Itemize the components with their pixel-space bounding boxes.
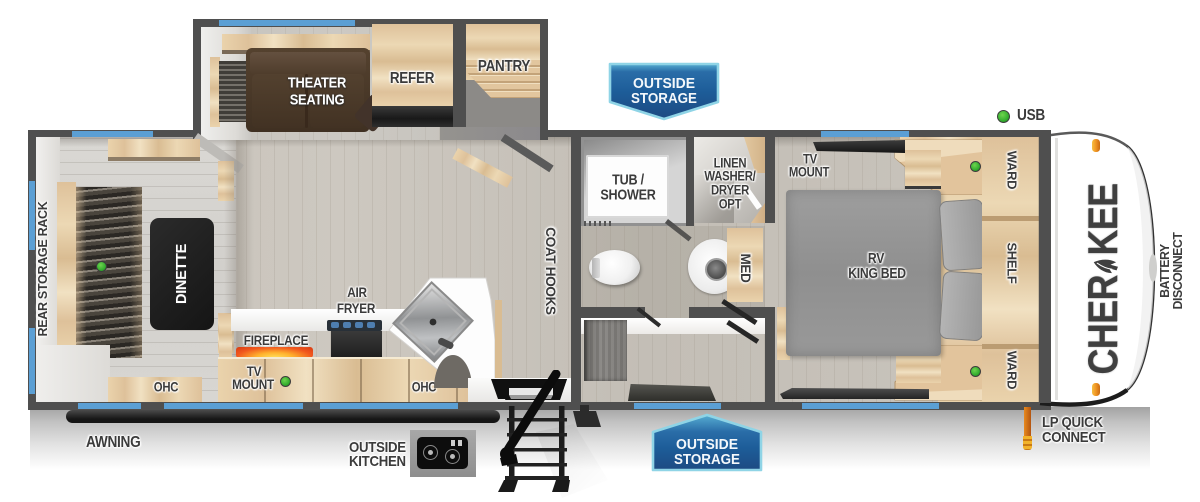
svg-text:OUTSIDE: OUTSIDE <box>633 76 695 92</box>
svg-text:STORAGE: STORAGE <box>631 91 697 107</box>
svg-text:OUTSIDE: OUTSIDE <box>676 437 738 453</box>
svg-text:STORAGE: STORAGE <box>674 452 740 468</box>
